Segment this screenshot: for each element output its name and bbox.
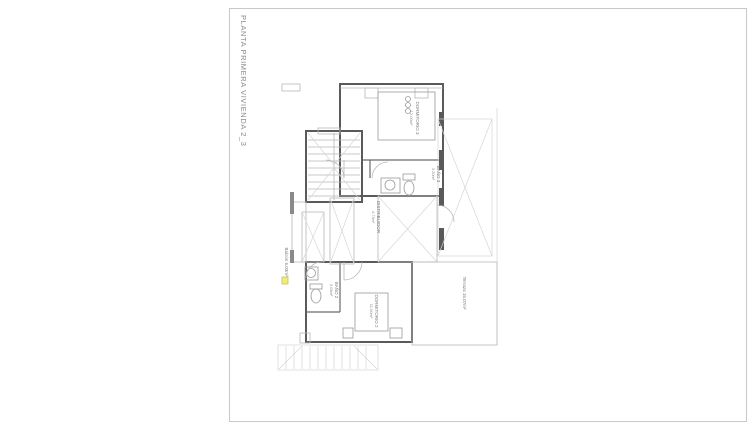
label-terraza: Terraza 15.07m² bbox=[462, 277, 467, 310]
terrace-outline bbox=[412, 262, 497, 345]
electrical-marker bbox=[282, 277, 288, 284]
bed-dormitorio3 bbox=[378, 92, 435, 140]
label-distribuidor-area: 4.73m² bbox=[371, 211, 376, 224]
label-bano3-area: 3.20m² bbox=[431, 168, 436, 181]
label-balcon: Balcón 6.03m² bbox=[284, 247, 289, 277]
label-bano2-area: 3.05m² bbox=[329, 284, 334, 297]
scanned-floor-plan-page: PLANTA PRIMERA VIVIENDA 2_3 bbox=[0, 0, 756, 432]
bano2-fixtures bbox=[305, 267, 322, 303]
label-dormitorio2-area: 11.00m² bbox=[369, 304, 374, 319]
void-cross-boxes bbox=[302, 108, 497, 345]
staircase bbox=[308, 133, 360, 200]
label-dormitorio3: DORMITORIO 3 bbox=[415, 102, 420, 135]
label-dormitorio3-area: 12.00m² bbox=[409, 111, 414, 126]
floor-plan-drawing: DORMITORIO 3 12.00m² BAÑO 3 3.20m² DISTR… bbox=[0, 0, 756, 432]
bano3-fixtures bbox=[381, 174, 415, 195]
lower-roof-hatch bbox=[278, 333, 378, 370]
